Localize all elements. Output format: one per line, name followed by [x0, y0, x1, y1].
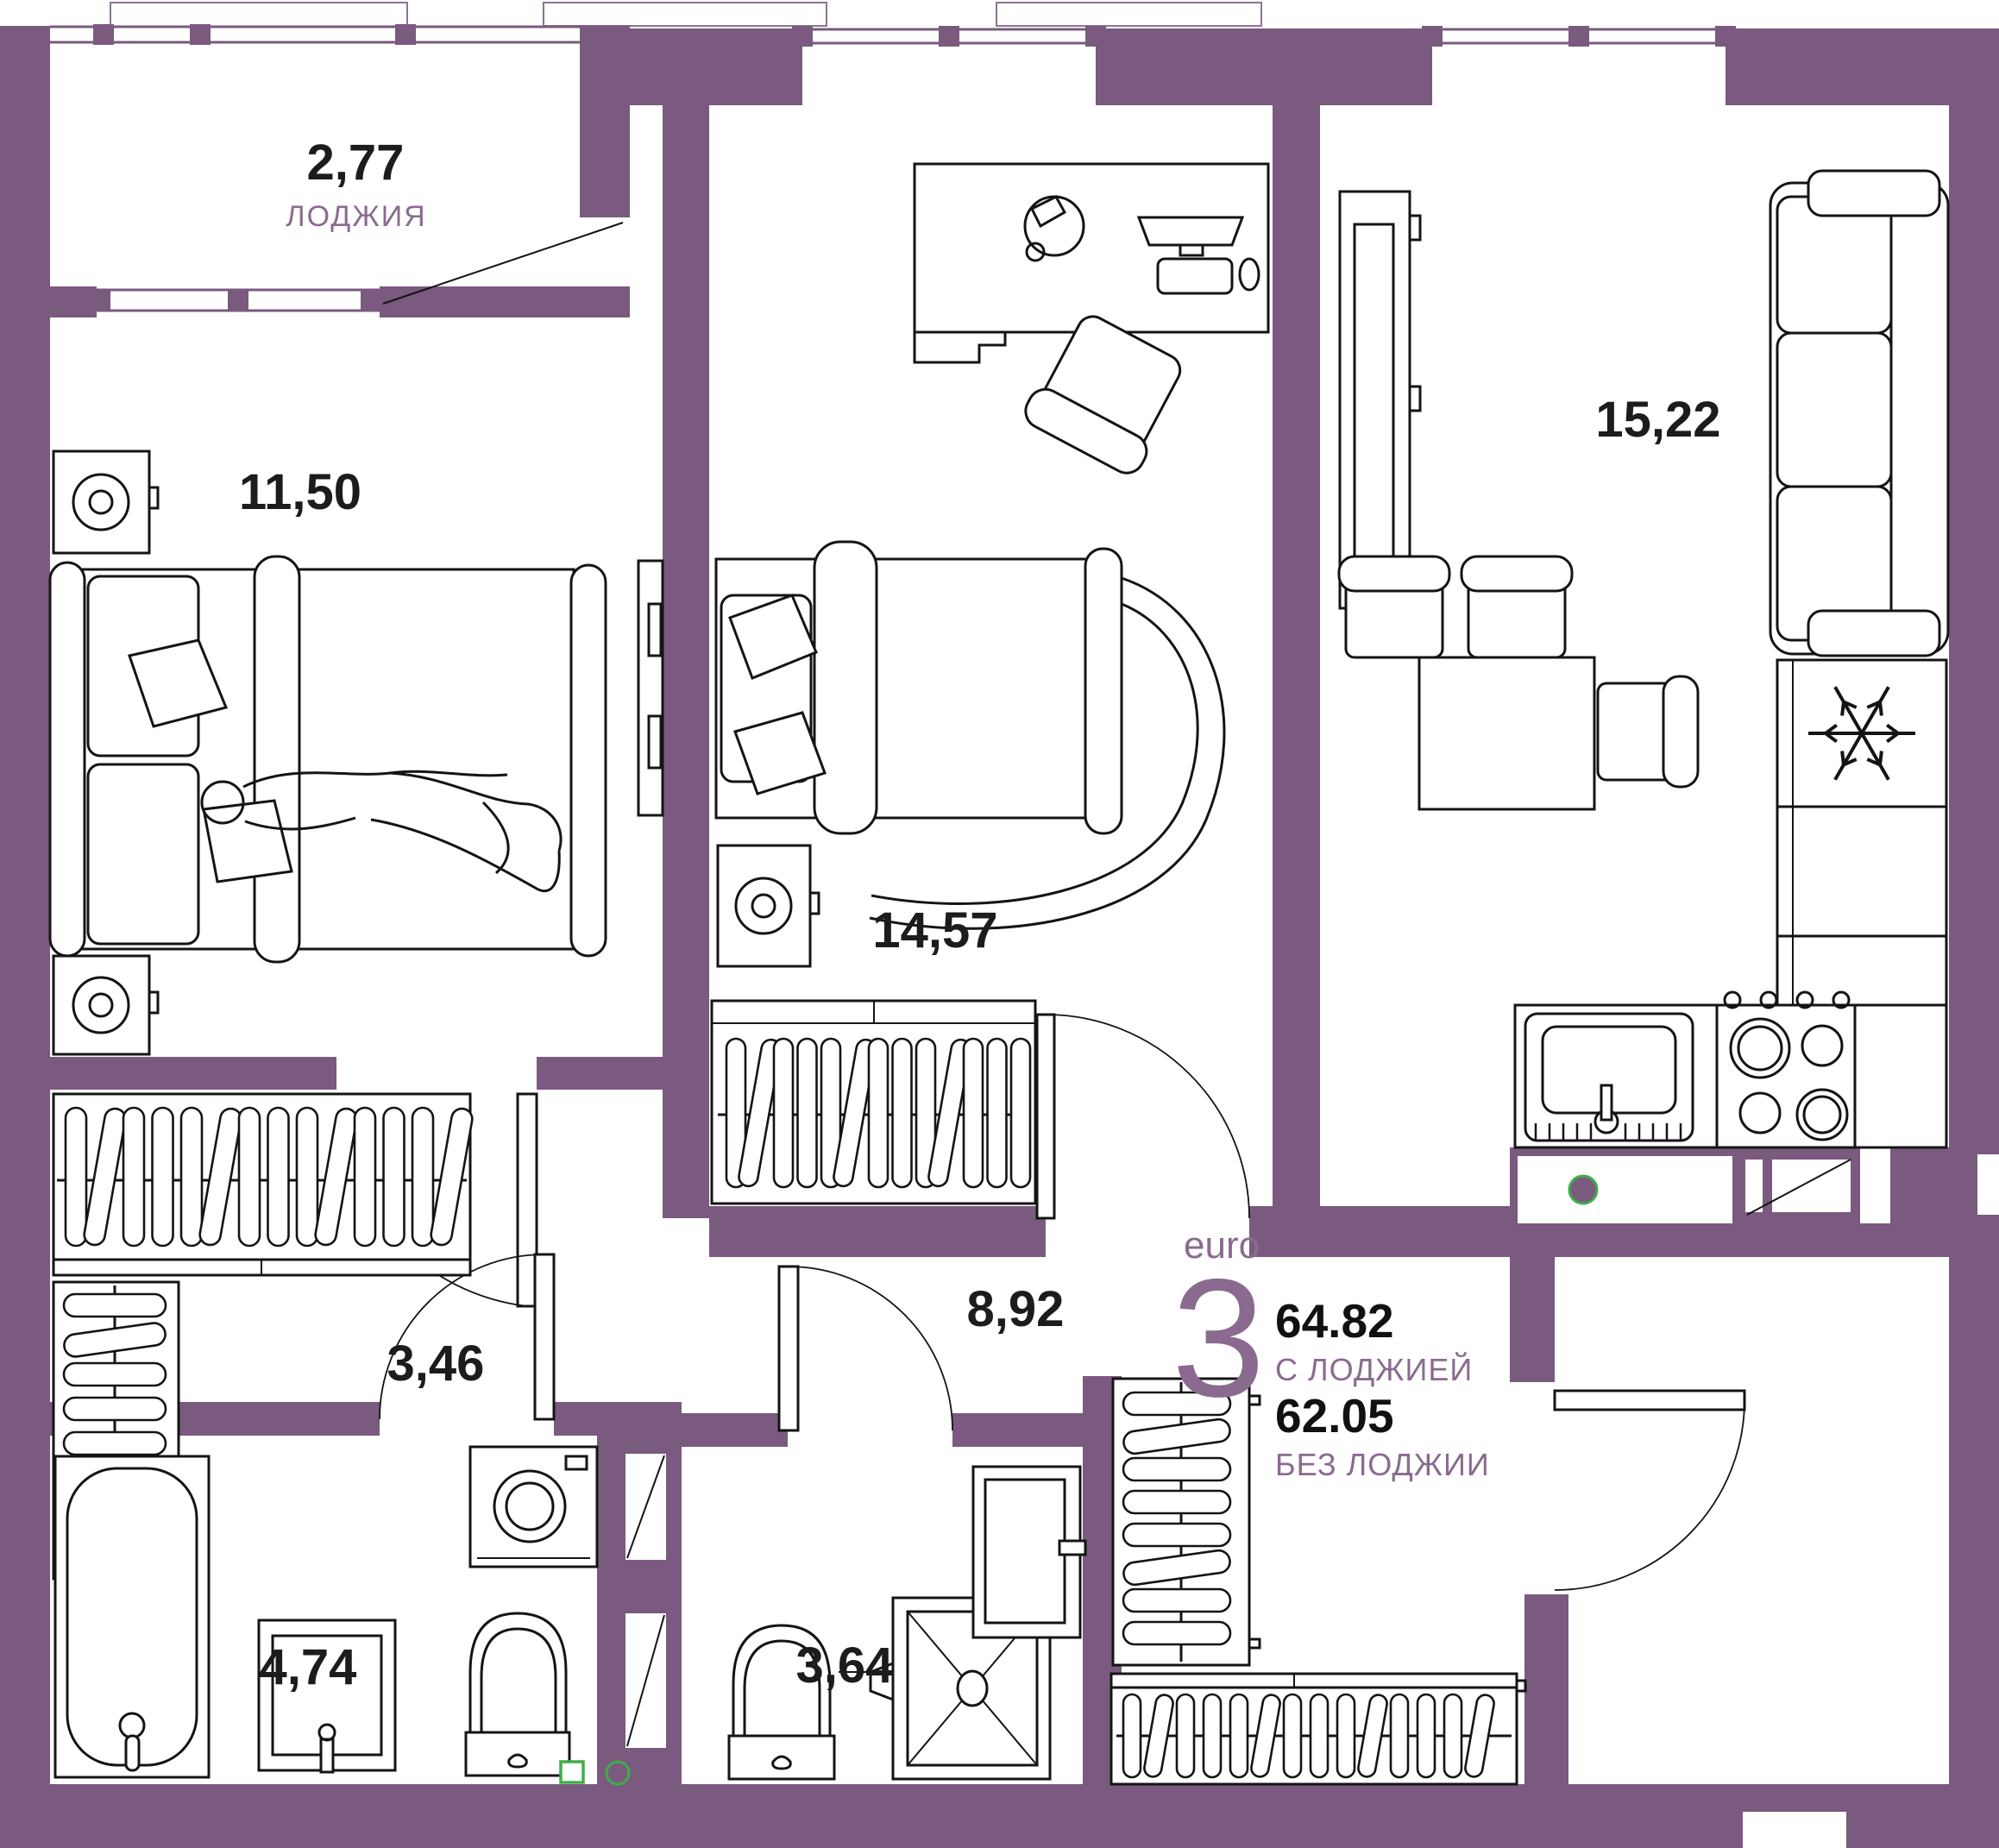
wall [50, 286, 97, 317]
floorplan-canvas: 2,77 ЛОДЖИЯ 11,50 14,57 15,22 3,46 8,92 … [0, 0, 1999, 1848]
vent-dot-icon [1569, 1176, 1597, 1204]
label-bedroom2-area: 14,57 [872, 902, 997, 959]
bathroom-furniture [55, 1447, 597, 1777]
toilet-icon [466, 1613, 569, 1776]
window-bedroom2 [792, 26, 1106, 47]
area-without-loggia-caption: БЕЗ ЛОДЖИИ [1275, 1447, 1490, 1482]
area-without-loggia: 62.05 [1275, 1389, 1394, 1443]
wall [537, 1057, 663, 1090]
nightstand-icon [718, 845, 819, 966]
wall [50, 1057, 336, 1090]
bedroom1-furniture [50, 451, 663, 1054]
area-with-loggia: 64.82 [1275, 1294, 1394, 1348]
windows [50, 24, 1736, 311]
wall [630, 28, 802, 105]
living-furniture [1339, 171, 1948, 1147]
label-living-area: 15,22 [1595, 392, 1720, 448]
label-loggia-area: 2,77 [307, 135, 405, 191]
wall [0, 1784, 1999, 1848]
door-bedroom2 [1037, 1015, 1249, 1218]
window-living [1422, 26, 1736, 47]
armchair-icon [1598, 676, 1698, 787]
tv-stand-icon [1340, 192, 1420, 608]
sofa-icon [1770, 171, 1948, 656]
wardrobe-icon [1111, 1674, 1525, 1784]
floorplan-svg: 2,77 ЛОДЖИЯ 11,50 14,57 15,22 3,46 8,92 … [0, 0, 1999, 1848]
label-bathroom-area: 4,74 [260, 1639, 357, 1695]
wall [380, 286, 630, 317]
door-kitchen [1555, 1391, 1744, 1590]
label-bedroom1-area: 11,50 [239, 464, 361, 520]
wardrobe-icon [53, 1094, 474, 1275]
wall-tv-icon [638, 561, 663, 815]
entry-accents [561, 1762, 629, 1784]
wardrobe-icon [712, 1001, 1035, 1204]
double-bed-icon [50, 556, 606, 962]
wall [1524, 1594, 1568, 1784]
area-with-loggia-caption: С ЛОДЖИЕЙ [1275, 1351, 1473, 1387]
label-showerwc-area: 3,64 [796, 1637, 894, 1694]
washing-machine-icon [470, 1447, 597, 1567]
wall [0, 26, 50, 1848]
wall [663, 105, 709, 1218]
wall [952, 1413, 1083, 1447]
wall [1273, 105, 1320, 1206]
window-loggia-top [50, 24, 630, 45]
showerwc-furniture [729, 1467, 1085, 1779]
wall [1510, 1257, 1555, 1382]
wall [1949, 28, 1999, 1784]
kitchen-counter [1515, 992, 1946, 1147]
apartment-type-number: 3 [1172, 1244, 1265, 1432]
dining-table-icon [1419, 657, 1594, 809]
bedroom2-furniture [712, 164, 1268, 1204]
legend-green-square [561, 1762, 583, 1782]
wall [682, 1413, 788, 1447]
dining-chair-icon [1462, 556, 1572, 657]
legend-green-dot-icon [607, 1762, 629, 1784]
nightstand-icon [53, 451, 158, 553]
dining-chair-icon [1339, 556, 1449, 657]
label-hall-area: 3,46 [387, 1336, 485, 1392]
label-corridor-area: 8,92 [967, 1281, 1065, 1337]
wall [1726, 28, 1949, 105]
bathtub-icon [55, 1456, 209, 1777]
sink-icon [1525, 1014, 1693, 1141]
wall-basin-icon [973, 1467, 1085, 1637]
wall [554, 1402, 604, 1436]
wall [709, 1206, 1046, 1257]
facade-slab-outlines [110, 3, 1261, 27]
nightstand-icon [53, 956, 158, 1054]
wall [580, 26, 630, 217]
door-showerwc [779, 1267, 952, 1430]
label-loggia-name: ЛОДЖИЯ [286, 200, 426, 233]
wall [1096, 28, 1432, 105]
